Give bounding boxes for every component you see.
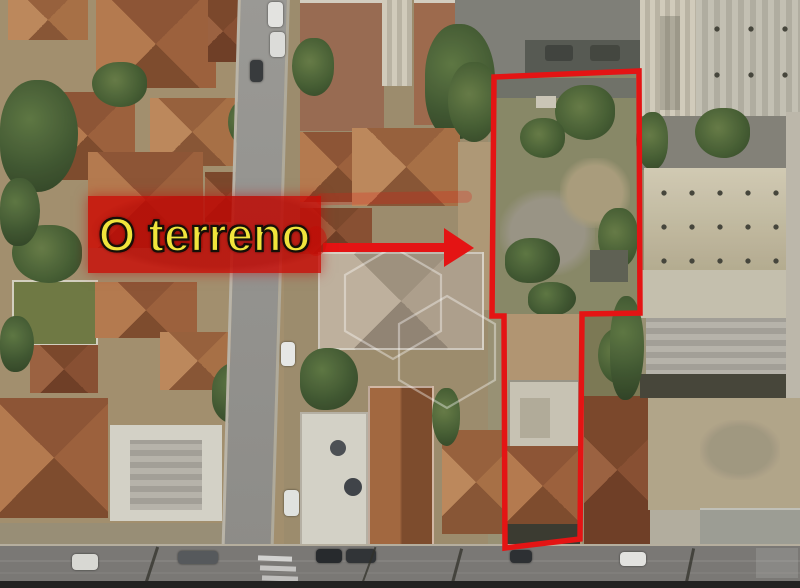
- terrain-label-text: O terreno: [99, 207, 311, 262]
- photo-haze: [0, 0, 800, 588]
- aerial-photo: O terreno: [0, 0, 800, 588]
- terrain-label: O terreno: [88, 196, 321, 273]
